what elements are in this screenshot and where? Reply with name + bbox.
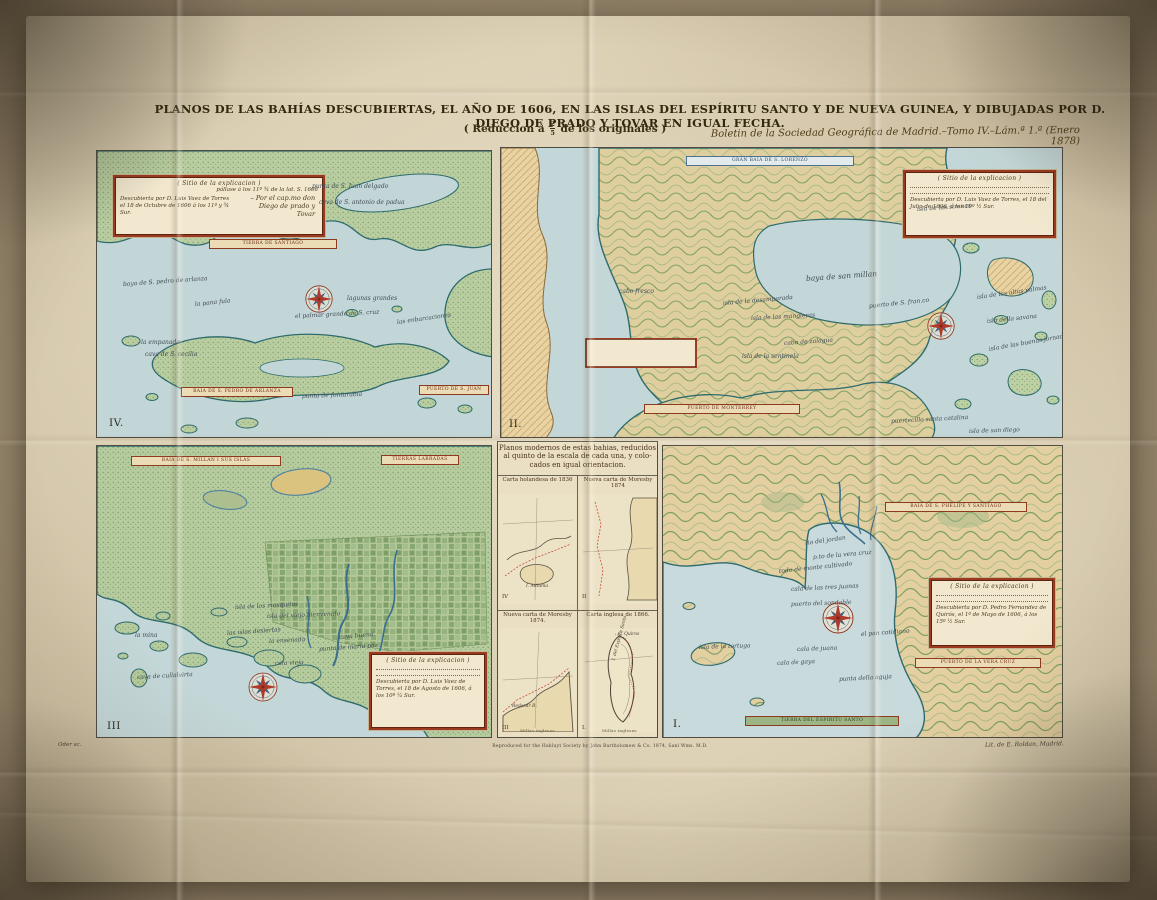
reduction-post: de los originales ) bbox=[561, 123, 667, 135]
panel-iii-number: III bbox=[107, 720, 121, 732]
place-label: lagunas grandes bbox=[347, 295, 397, 302]
place-label: punta de S. Juan delgado bbox=[312, 183, 388, 190]
chart-corner-numeral: II bbox=[582, 594, 586, 600]
panel-iii-banner-right: TIERRAS LABRADAS bbox=[381, 455, 459, 465]
cartouche-credit: – Por el cap.mo don Diego de prado y Tov… bbox=[240, 194, 315, 218]
place-label: cava de S. cecilia bbox=[145, 351, 197, 358]
modern-charts-panel: Planos modernos de estas bahias, reducid… bbox=[497, 441, 658, 738]
panel-ii-number: II. bbox=[509, 418, 522, 430]
reduction-pre: ( Reduccion á bbox=[464, 123, 545, 135]
panel-ii-cartouche: ( Sitio de la explicacion ) Descubierta … bbox=[903, 170, 1056, 238]
publisher-imprint: Reproduced for the Hakluyt Society by Jo… bbox=[430, 744, 770, 749]
panel-iii-cartouche: ( Sitio de la explicacion ) Descubierta … bbox=[369, 652, 487, 730]
chart-corner-numeral: III bbox=[502, 725, 509, 731]
panel-iv-banner-left: BAIA DE S. PEDRO DE ARLANZA bbox=[181, 387, 293, 397]
scale-note: Millas inglesas bbox=[520, 728, 555, 733]
compass-rose-icon bbox=[304, 284, 334, 314]
panel-i-banner-mid: PUERTO DE LA VERA CRUZ bbox=[915, 658, 1041, 668]
panel-iv-banner-top: TIERRA DE SANTIAGO bbox=[209, 239, 337, 249]
place-label: isla de la sentinela bbox=[742, 353, 799, 360]
lithographer-credit: Lit. de E. Roldan, Madrid. bbox=[985, 740, 1064, 748]
photograph-of-antique-map: PLANOS DE LAS BAHÍAS DESCUBIERTAS, EL AÑ… bbox=[0, 0, 1157, 900]
chart-place-label: Redscar B. bbox=[512, 704, 537, 709]
cartouche-body: Descubierta por D. Pedro Fernandez de Qu… bbox=[936, 605, 1048, 626]
panel-i-number: I. bbox=[673, 718, 682, 730]
chart-place-label: I. Aiduma bbox=[526, 584, 548, 589]
chart-corner-numeral: IV bbox=[502, 594, 508, 600]
cartouche-heading: ( Sitio de la explicacion ) bbox=[120, 180, 318, 187]
panel-iv-banner-right: PUERTO DE S. JUAN bbox=[419, 385, 489, 395]
divider bbox=[577, 475, 578, 737]
panel-i-cartouche: ( Sitio de la explicacion ) Descubierta … bbox=[929, 578, 1055, 648]
panel-ii-banner-top: GRAN BAIA DE S. LORENZO bbox=[686, 156, 854, 166]
divider bbox=[498, 610, 657, 611]
map-panel-iv: ( Sitio de la explicacion ) pállase á lo… bbox=[96, 150, 492, 438]
panel-iv-cartouche: ( Sitio de la explicacion ) pállase á lo… bbox=[113, 175, 325, 237]
map-panel-ii: ( Sitio de la explicacion ) Descubierta … bbox=[500, 147, 1063, 438]
map-panel-i: ( Sitio de la explicacion ) Descubierta … bbox=[662, 445, 1063, 738]
chart-moresby-1874-a bbox=[579, 494, 657, 604]
reduction-note: ( Reduccion á 25 de los originales ) bbox=[430, 121, 700, 137]
chart-corner-numeral: I. bbox=[582, 725, 586, 731]
chart-caption: Nueva carta de Moresby 1874. bbox=[499, 612, 576, 624]
compass-rose-icon bbox=[926, 311, 956, 341]
chart-caption: Carta holandesa de 1836 bbox=[499, 477, 576, 483]
place-label: cala vieja bbox=[275, 659, 304, 667]
map-panel-iii: ( Sitio de la explicacion ) Descubierta … bbox=[96, 445, 492, 738]
modern-charts-heading: Planos modernos de estas bahias, reducid… bbox=[498, 444, 657, 469]
chart-caption: Carta inglesa de 1866. bbox=[579, 612, 657, 618]
place-label: la empanada bbox=[141, 339, 180, 346]
cartouche-note: pállase á los 11º ¾ de la lat. S. 1606 bbox=[120, 187, 318, 193]
cartouche-heading: ( Sitio de la explicacion ) bbox=[376, 657, 480, 664]
place-label: cabo fresco bbox=[619, 288, 654, 295]
place-label: la mina bbox=[135, 632, 157, 639]
cartouche-body: Descubierta por D. Luis Vaez de Torres e… bbox=[120, 196, 235, 217]
chart-moresby-1874-b bbox=[499, 628, 576, 732]
panel-i-banner-top: BAIA DE S. PHELIPE Y SANTIAGO bbox=[885, 502, 1027, 512]
cartouche-heading: ( Sitio de la explicacion ) bbox=[936, 583, 1048, 590]
cartouche-body: Descubierta por D. Luis Vaez de Torres, … bbox=[376, 679, 480, 700]
panel-iii-banner-left: BAIA DE S. MILLAN I SUS ISLAS bbox=[131, 456, 281, 466]
reduction-fraction: 25 bbox=[550, 121, 555, 137]
panel-ii-banner-bottom: PUERTO DE MONTERREY bbox=[644, 404, 800, 414]
compass-rose-icon bbox=[247, 671, 279, 703]
place-label: cala de juana bbox=[797, 645, 838, 653]
engraver-credit: Oder sc. bbox=[58, 742, 81, 748]
place-label: cava de S. antonio de padua bbox=[319, 199, 405, 206]
panel-ii-note-box bbox=[585, 338, 697, 368]
cartouche-heading: ( Sitio de la explicacion ) bbox=[910, 175, 1049, 182]
scale-note: Millas inglesas bbox=[602, 728, 637, 733]
panel-iv-number: IV. bbox=[109, 417, 124, 429]
panel-i-banner-bottom: TIERRA DEL ESPIRITU SANTO bbox=[745, 716, 899, 726]
chart-caption: Nueva carta de Moresby 1874 bbox=[579, 477, 657, 489]
chart-place-label: C. Quiros bbox=[618, 632, 639, 637]
